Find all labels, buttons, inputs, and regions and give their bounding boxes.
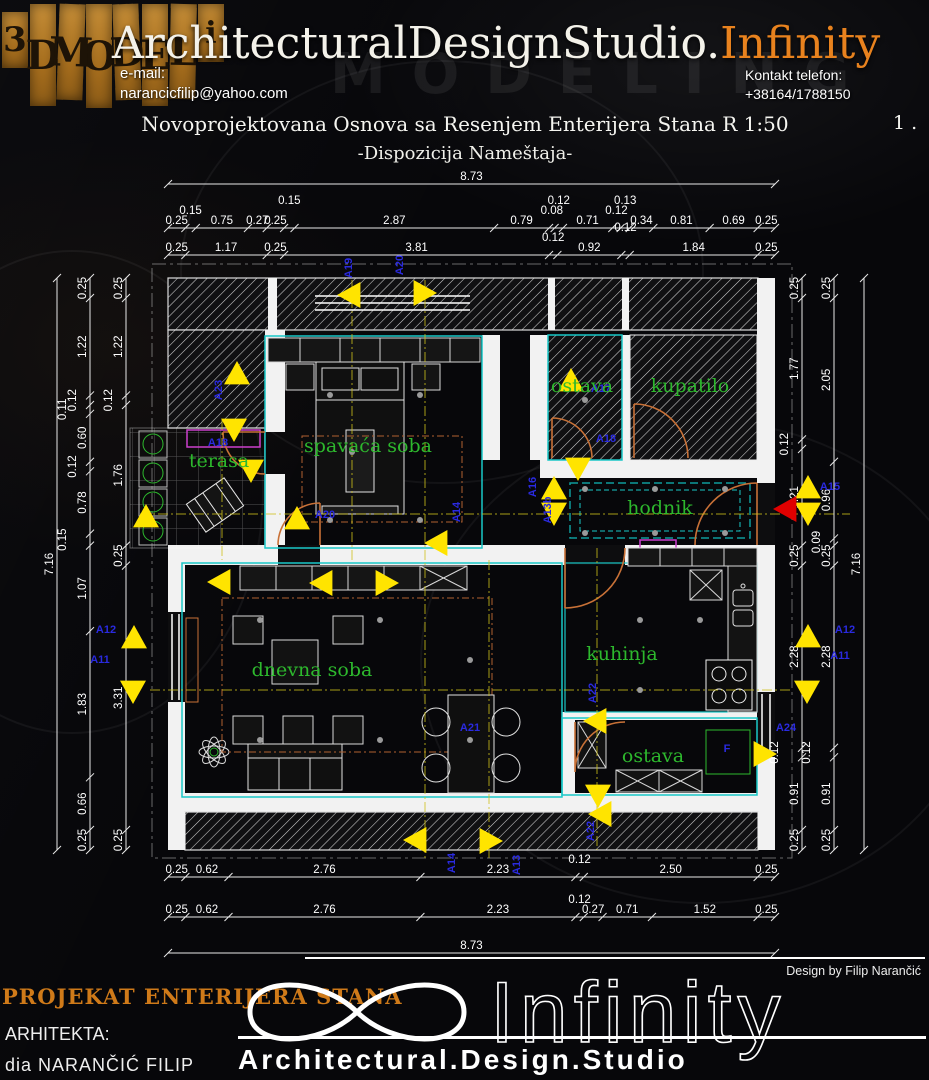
dimension-value: 2.76 [313, 864, 335, 876]
view-marker-label: A19 [343, 258, 355, 278]
room-name-label: dnevna soba [252, 659, 373, 681]
dimension-value: 1.22 [77, 336, 89, 358]
dimension-value: 0.25 [821, 277, 833, 299]
room-name-label: hodnik [627, 497, 693, 519]
dimension-value: 0.25 [165, 904, 187, 916]
dimension-value: 0.12 [801, 741, 813, 763]
drawing-sheet: MODELING 3DMODELi ArchitecturalDesignStu… [0, 0, 929, 1080]
view-direction-triangle [795, 503, 821, 526]
dimension-value: 0.12 [568, 854, 590, 866]
nightstand [412, 364, 440, 390]
room-name-label: ostava [551, 375, 613, 397]
stove [706, 660, 752, 710]
dimension-value: 0.75 [211, 215, 233, 227]
sofa [248, 744, 342, 790]
dimension-value: 0.25 [113, 277, 125, 299]
view-marker-label: A12 [835, 624, 855, 636]
dimension-value: 2.28 [789, 645, 801, 667]
dimension-value: 0.25 [755, 904, 777, 916]
view-marker-label: A14 [451, 501, 463, 522]
dimension-value: 0.15 [179, 205, 201, 217]
dimension-value: 0.79 [510, 215, 532, 227]
view-marker-label: A11 [830, 650, 850, 662]
room-name-label: terasa [189, 450, 249, 472]
dimension-value: 0.25 [821, 829, 833, 851]
dimension-value: 1.84 [682, 242, 705, 254]
dimension-value: 0.25 [264, 242, 286, 254]
dimension-value: 2.50 [660, 864, 682, 876]
dimension-value: 0.62 [196, 864, 218, 876]
dimension-value: 0.69 [722, 215, 744, 227]
view-marker-label: A18 [208, 437, 228, 449]
view-direction-triangle [541, 476, 567, 499]
dimension-value: 0.25 [755, 215, 777, 227]
dimension-value: 0.71 [616, 904, 638, 916]
dimension-value: 0.25 [77, 277, 89, 299]
dimension-value: 0.25 [77, 829, 89, 851]
dimension-value: 0.15 [278, 195, 300, 207]
dimension-value: 0.13 [614, 195, 636, 207]
dimension-value: 0.12 [103, 389, 115, 411]
dimension-value: 1.17 [215, 242, 237, 254]
view-marker-label: A13b [542, 496, 554, 523]
dimension-value: 1.83 [77, 693, 89, 715]
dimension-value: 1.76 [113, 464, 125, 486]
dimension-value: 0.25 [755, 242, 777, 254]
dimension-value: 0.91 [821, 782, 833, 804]
view-marker-label: A11 [90, 654, 110, 666]
dimension-value: 8.73 [460, 171, 482, 183]
dining-set [422, 695, 520, 793]
view-direction-triangle [794, 681, 820, 704]
view-marker-label: A14 [446, 852, 458, 873]
dimension-value: 3.81 [405, 242, 427, 254]
dimension-value: 0.12 [542, 232, 564, 244]
infinity-symbol-icon [250, 985, 464, 1039]
view-marker-label: A18 [596, 433, 616, 445]
dimension-value: 0.15 [57, 528, 69, 550]
dimension-value: 1.07 [77, 577, 89, 599]
architect-label: ARHITEKTA: [5, 1024, 110, 1045]
dimension-value: 0.25 [755, 864, 777, 876]
view-direction-triangle [121, 625, 147, 648]
wardrobe-strip [268, 338, 480, 362]
view-marker-label: A23 [213, 380, 225, 400]
dimension-value: 2.05 [821, 369, 833, 391]
studio-wordline: Architectural.Design.Studio [238, 1036, 926, 1076]
dimension-value: 2.23 [487, 864, 509, 876]
view-direction-triangle [795, 624, 821, 647]
view-direction-triangle [207, 569, 230, 595]
cabinet-strip [240, 566, 467, 590]
terrace [130, 428, 265, 548]
view-marker-label: A21 [460, 722, 480, 734]
dimension-value: 0.60 [77, 427, 89, 449]
view-marker-label: A15 [820, 481, 840, 493]
dimension-value: 0.25 [789, 277, 801, 299]
dimension-value: 1.77 [789, 357, 801, 379]
dimension-value: 0.78 [77, 491, 89, 513]
dimension-value: 2.23 [487, 904, 509, 916]
view-marker-label: A24 [776, 722, 797, 734]
view-marker-label: A20 [394, 255, 406, 275]
storage-cabinets [616, 770, 702, 792]
dimension-value: 8.73 [460, 940, 482, 952]
wall-unit [186, 618, 198, 702]
dimension-value: 0.12 [548, 195, 570, 207]
nightstand [286, 364, 314, 390]
floor-plan: 8.730.250.150.750.270.250.152.870.790.08… [0, 0, 929, 1080]
dimension-value: 0.25 [789, 829, 801, 851]
room-name-label: ostava [622, 745, 684, 767]
dimension-value: 0.12 [779, 433, 791, 455]
dimension-value: 3.31 [113, 687, 125, 709]
dimension-value: 0.25 [165, 864, 187, 876]
dimension-value: 1.52 [694, 904, 716, 916]
view-marker-label: A12 [96, 624, 116, 636]
view-marker-label: A20 [315, 509, 335, 521]
dimension-value: 0.25 [165, 242, 187, 254]
view-marker-label: A22 [585, 821, 597, 841]
view-marker-label: A16 [527, 477, 539, 497]
dimension-value: 0.91 [789, 782, 801, 804]
architect-name: dia NARANČIĆ FILIP [5, 1055, 194, 1076]
room-name-label: spavaća soba [304, 435, 432, 457]
dimension-value: 2.76 [313, 904, 335, 916]
dimension-value: 0.25 [821, 544, 833, 566]
room-name-label: kuhinja [586, 643, 658, 665]
dimension-value: 0.12 [614, 222, 636, 234]
dimension-value: 0.66 [77, 792, 89, 814]
dimension-value: 0.25 [113, 829, 125, 851]
hatched-rooms [548, 335, 757, 460]
dimension-value: 0.25 [264, 215, 286, 227]
dimension-value: 2.87 [383, 215, 405, 227]
dimension-value: 0.92 [578, 242, 600, 254]
view-marker-label: A22 [587, 683, 599, 703]
entrance-direction-triangle [773, 496, 796, 522]
dimension-value: 7.16 [44, 553, 56, 575]
dimension-value: 0.62 [196, 904, 218, 916]
dimension-value: 0.71 [576, 215, 598, 227]
view-marker-label: A13 [511, 855, 523, 875]
dimension-value: 1.22 [113, 336, 125, 358]
view-marker-label: F [724, 743, 731, 755]
dimension-value: 0.27 [582, 904, 604, 916]
dimension-value: 7.16 [851, 553, 863, 575]
dimension-value: 0.25 [113, 544, 125, 566]
dimension-value: 0.12 [67, 455, 79, 477]
dimension-value: 0.11 [57, 399, 69, 421]
room-name-label: kupatilo [651, 375, 729, 397]
dimension-value: 0.25 [789, 544, 801, 566]
dimension-value: 0.81 [670, 215, 692, 227]
